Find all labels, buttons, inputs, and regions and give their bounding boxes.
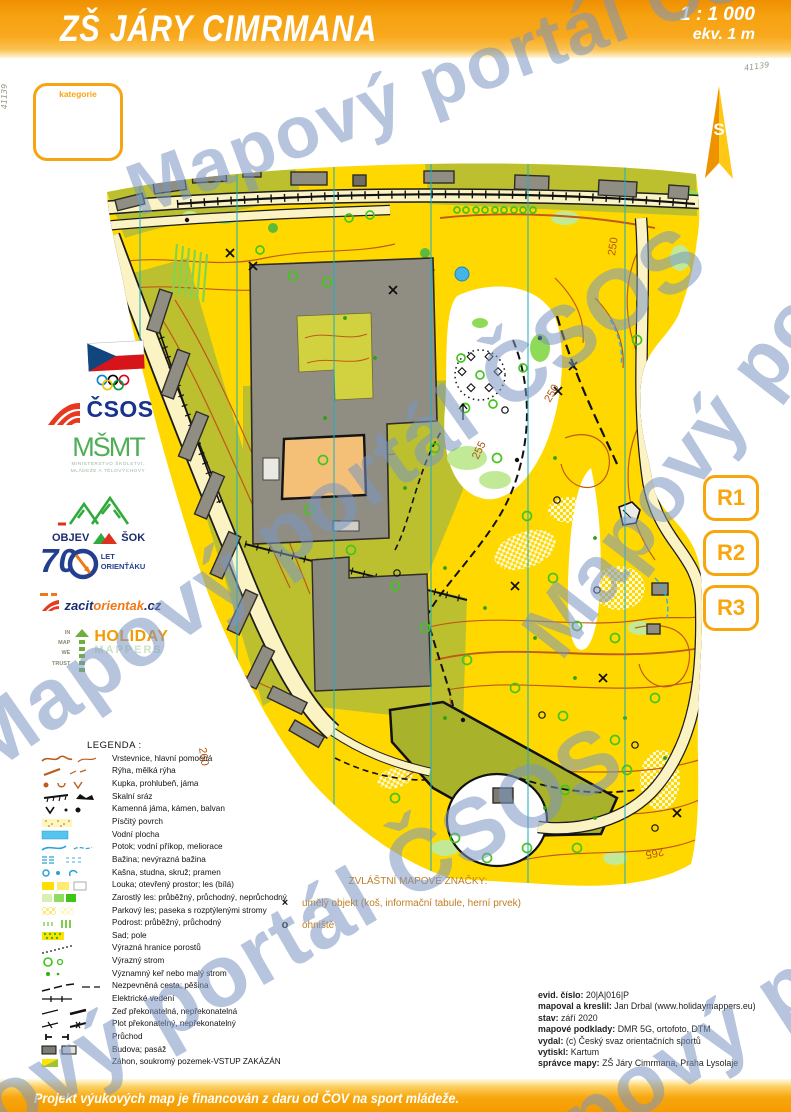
csos-swoosh-icon bbox=[46, 399, 82, 427]
legend-item: Parkový les; paseka s rozptýlenými strom… bbox=[40, 904, 287, 917]
credit-line: vydal: (c) Český svaz orientačních sport… bbox=[538, 1036, 756, 1047]
legend-item: Kupka, prohlubeň, jáma bbox=[40, 777, 287, 790]
orientaku-label: ORIENŤÁKU bbox=[101, 562, 146, 572]
legend-item: Významný keř nebo malý strom bbox=[40, 967, 287, 980]
bush-small-tree-icon bbox=[40, 967, 112, 979]
objev-sok-triangles-icon bbox=[92, 531, 118, 544]
legend-item: Písčitý povrch bbox=[40, 815, 287, 828]
cross-symbol: × bbox=[268, 897, 302, 909]
erosion-gully-icon bbox=[40, 765, 112, 777]
circle-symbol: o bbox=[268, 919, 302, 931]
wall-icon bbox=[40, 1005, 112, 1017]
legend-item: Nezpevněná cesta; pěšina bbox=[40, 980, 287, 993]
legend-item: Podrost: průběžný, průchodný bbox=[40, 916, 287, 929]
cz-label: .cz bbox=[144, 598, 161, 613]
legend-item: Vrstevnice, hlavní pomocná bbox=[40, 752, 287, 765]
legend-item: Výrazná hranice porostů bbox=[40, 942, 287, 955]
trust-line-4: TRUST bbox=[52, 659, 70, 669]
sok-label: ŠOK bbox=[121, 532, 145, 544]
credit-line: mapoval a kreslil: Jan Drbal (www.holida… bbox=[538, 1001, 756, 1012]
csos-logo: ČSOS bbox=[46, 396, 176, 428]
equidistance-value: ekv. 1 m bbox=[680, 26, 755, 44]
objev-sok-logo: OBJEV ŠOK bbox=[52, 496, 162, 548]
footer-bar: Projekt výukových map je financován z da… bbox=[0, 1079, 791, 1112]
trust-line-3: WE bbox=[52, 648, 70, 658]
special-symbols-title: ZVLÁŠTNÍ MAPOVÉ ZNAČKY: bbox=[268, 876, 568, 887]
special-symbol-item: × umělý objekt (koš, informační tabule, … bbox=[268, 897, 568, 909]
credit-line: stav: září 2020 bbox=[538, 1013, 756, 1024]
marsh-icon bbox=[40, 853, 112, 865]
let-label: LET bbox=[101, 552, 146, 562]
vegetation-boundary-icon bbox=[40, 942, 112, 954]
pencil-note-left: 41139 bbox=[0, 84, 9, 109]
route-box-label: R1 bbox=[717, 485, 745, 511]
msmt-title: MŠMT bbox=[58, 434, 158, 461]
meadow-open-icon bbox=[40, 879, 112, 891]
msmt-subtitle-2: MLÁDEŽE A TĚLOVÝCHOVY bbox=[58, 468, 158, 475]
route-box-label: R2 bbox=[717, 540, 745, 566]
legend-item: Zeď překonatelná, nepřekonatelná bbox=[40, 1005, 287, 1018]
legend-item: Zarostlý les: průběžný, průchodný, neprů… bbox=[40, 891, 287, 904]
legend-item: Plot překonatelný, nepřekonatelný bbox=[40, 1017, 287, 1030]
legend-item: Kamenná jáma, kámen, balvan bbox=[40, 803, 287, 816]
undergrowth-icon bbox=[40, 917, 112, 929]
sandy-ground-icon bbox=[40, 816, 112, 828]
objev-sok-mountains-icon bbox=[52, 496, 162, 526]
contour-label-250: 250 bbox=[606, 237, 620, 257]
legend-item: Záhon, soukromý pozemek-VSTUP ZAKÁZÁN bbox=[40, 1055, 287, 1068]
legend-item: Potok; vodní příkop, meliorace bbox=[40, 840, 287, 853]
map-title: ZŠ JÁRY CIMRMANA bbox=[60, 8, 377, 50]
credit-line: vytiskl: Kartum bbox=[538, 1047, 756, 1058]
compass-icon bbox=[65, 544, 99, 584]
orchard-field-icon bbox=[40, 929, 112, 941]
route-box-r2: R2 bbox=[703, 530, 759, 576]
zacit-label: zacit bbox=[64, 598, 93, 613]
fountain-well-icon bbox=[40, 866, 112, 878]
route-box-label: R3 bbox=[717, 595, 745, 621]
knoll-pit-icon bbox=[40, 778, 112, 790]
flowerbed-private-icon bbox=[40, 1056, 112, 1068]
header-bar: ZŠ JÁRY CIMRMANA 1 : 1 000 ekv. 1 m bbox=[0, 0, 791, 58]
stream-ditch-icon bbox=[40, 841, 112, 853]
map-pond bbox=[455, 267, 469, 281]
msmt-subtitle-1: MINISTERSTVO ŠKOLSTVÍ, bbox=[58, 461, 158, 468]
legend-item: Výrazný strom bbox=[40, 954, 287, 967]
credit-line: evid. číslo: 20|A|016|P bbox=[538, 990, 756, 1001]
route-box-r3: R3 bbox=[703, 585, 759, 631]
legend-item: Bažina; nevýrazná bažina bbox=[40, 853, 287, 866]
legend-item: Budova; pasáž bbox=[40, 1043, 287, 1056]
legend-item: Průchod bbox=[40, 1030, 287, 1043]
special-symbols-section: ZVLÁŠTNÍ MAPOVÉ ZNAČKY: × umělý objekt (… bbox=[268, 876, 568, 931]
legend-item: Sad; pole bbox=[40, 929, 287, 942]
pencil-note: 41139 bbox=[743, 60, 769, 72]
mappers-ghost-label: MAPPERS bbox=[94, 644, 168, 656]
rock-face-icon bbox=[40, 790, 112, 802]
trust-line-1: IN bbox=[52, 628, 70, 638]
north-label: S bbox=[713, 120, 724, 139]
scale-value: 1 : 1 000 bbox=[680, 4, 755, 26]
legend-item: Elektrické vedení bbox=[40, 992, 287, 1005]
orientak-label: orientak bbox=[93, 598, 144, 613]
msmt-logo: MŠMT MINISTERSTVO ŠKOLSTVÍ, MLÁDEŽE A TĚ… bbox=[58, 434, 158, 496]
holiday-mappers-logo: IN MAP WE TRUST HOLIDAY MAPPERS bbox=[52, 628, 182, 686]
zacitorientak-logo: zacitorientak.cz bbox=[42, 597, 192, 615]
credit-line: mapové podklady: DMR 5G, ortofoto, DTM bbox=[538, 1024, 756, 1035]
map-small-structure bbox=[333, 521, 359, 531]
70-let-orientaku-logo: 70 LET ORIENŤÁKU bbox=[40, 544, 160, 590]
map-small-structure bbox=[263, 458, 279, 480]
special-symbol-item: o ohniště bbox=[268, 919, 568, 931]
prominent-tree-icon bbox=[40, 955, 112, 967]
crossing-point-icon bbox=[40, 1030, 112, 1042]
map-credits: evid. číslo: 20|A|016|P mapoval a kresli… bbox=[538, 990, 756, 1070]
map-hall-building bbox=[312, 557, 431, 691]
footer-text: Projekt výukových map je financován z da… bbox=[34, 1090, 459, 1106]
water-area-icon bbox=[40, 828, 112, 840]
stony-pit-boulder-icon bbox=[40, 803, 112, 815]
category-label: kategorie bbox=[36, 89, 120, 99]
czech-olympic-logo bbox=[80, 340, 150, 392]
unpaved-path-icon bbox=[40, 980, 112, 992]
map-canopy-building bbox=[282, 435, 366, 499]
trust-line-2: MAP bbox=[52, 638, 70, 648]
legend-item: Kašna, studna, skruž; pramen bbox=[40, 866, 287, 879]
olympic-rings-icon bbox=[97, 375, 128, 389]
credit-line: správce mapy: ZŠ Járy Cimrmana, Praha Ly… bbox=[538, 1058, 756, 1069]
zacitorientak-swoosh-icon bbox=[42, 599, 60, 612]
legend-item: Rýha, mělká rýha bbox=[40, 765, 287, 778]
building-passage-icon bbox=[40, 1043, 112, 1055]
category-box: kategorie bbox=[33, 83, 123, 161]
overgrown-forest-icon bbox=[40, 891, 112, 903]
csos-label: ČSOS bbox=[86, 396, 153, 422]
map-scale: 1 : 1 000 ekv. 1 m bbox=[680, 4, 755, 44]
route-box-r1: R1 bbox=[703, 475, 759, 521]
legend-item: Skalní sráz bbox=[40, 790, 287, 803]
park-forest-icon bbox=[40, 904, 112, 916]
scanned-map-page: ZŠ JÁRY CIMRMANA 1 : 1 000 ekv. 1 m 4113… bbox=[0, 0, 791, 1112]
czech-flag-icon bbox=[87, 341, 144, 372]
legend-item: Louka; otevřený prostor; les (bílá) bbox=[40, 878, 287, 891]
legend-title: LEGENDA : bbox=[87, 740, 142, 751]
contours-icon bbox=[40, 752, 112, 764]
power-line-icon bbox=[40, 992, 112, 1004]
map-arrow-strip-icon bbox=[74, 628, 90, 680]
fence-icon bbox=[40, 1018, 112, 1030]
legend-item: Vodní plocha bbox=[40, 828, 287, 841]
